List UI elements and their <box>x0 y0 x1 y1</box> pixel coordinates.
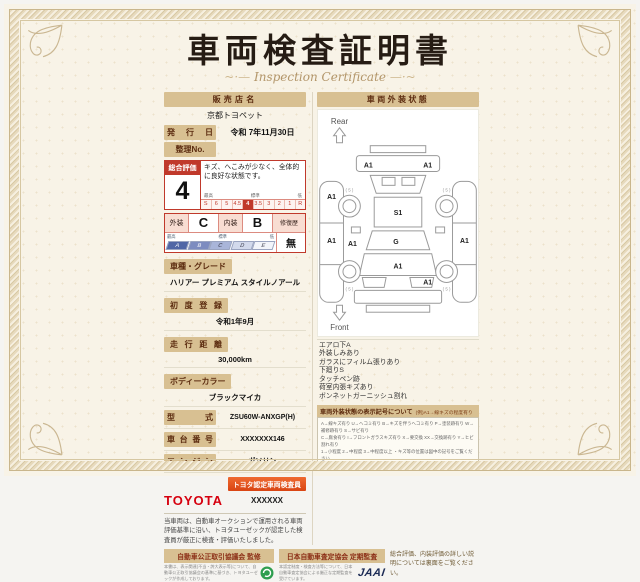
grade-chip: E <box>252 241 276 250</box>
ref-no-label: 整理No. <box>164 142 216 157</box>
jaai-audit-text: 本認定制度・検査方法等について、日本自動車査定協会による厳正な定期監査を受けてい… <box>279 564 356 582</box>
field-value: ブラックマイカ <box>164 389 306 404</box>
vehicle-field: 車台番号XXXXXXX146 <box>164 432 306 451</box>
field-value: ハリアー プレミアム スタイルノアール <box>164 274 306 289</box>
field-label: 型式 <box>164 410 216 425</box>
issue-date-row: 発行日 令和 7年11月30日 <box>164 125 306 140</box>
field-label: ボディーカラー <box>164 374 231 389</box>
overall-rating-detail: キズ、へこみが少なく、全体的に良好な状態です。 最高 標準 低 S654.543… <box>201 161 305 209</box>
field-label: 車種・グレード <box>164 259 232 274</box>
rating-scale-cell: S <box>201 200 211 209</box>
certified-inspector-badge: トヨタ認定車両検査員 <box>228 477 306 491</box>
inspection-disclaimer: 当車両は、自動車オークションで運用される車両評価基準に沿い、トヨタユーゼックが認… <box>164 513 306 545</box>
interior-grade-value: B <box>243 214 273 232</box>
condition-note: 外装しみあり <box>319 350 479 358</box>
field-label: エンジン <box>164 454 216 469</box>
back-page-note: 総合評価、内装評価の詳しい説明については裏面をご覧ください。 <box>390 549 476 579</box>
field-value: ZSU60W-ANXGP(H) <box>219 414 306 421</box>
front-direction-label: Front <box>330 323 349 332</box>
condition-note: 荷室内張キズあり <box>319 384 479 392</box>
jaai-audit-block: 日本自動車査定協会 定期監査 本認定制度・検査方法等について、日本自動車査定協会… <box>279 549 385 582</box>
fair-trade-council-body: 本書は、表示関連(不当・誇大表示等)について、自動車公正取引協議会の基準に基づき… <box>164 564 274 582</box>
certificate-paper: 車両検査証明書 Inspection Certificate 販売店名 京都トヨ… <box>4 4 636 476</box>
grade-chip: A <box>166 241 190 250</box>
tire-depth-mark: ( 5 ) <box>345 286 353 291</box>
rating-scale-row: S654.543.5321R <box>201 199 305 209</box>
exterior-condition-column: 車両外装状態 <box>312 92 479 545</box>
legend-example: (例)A1→線キズの程度有り <box>416 409 473 416</box>
dealer-name-value: 京都トヨペット <box>164 107 306 123</box>
damage-mark: A1 <box>394 263 403 270</box>
legend-key-lines: A→線キズ有り U→ヘコミ有り B→キズを伴うヘコミ有り P→塗装跡有り W→補… <box>317 417 479 465</box>
field-value: ガソリン <box>219 456 306 466</box>
condition-note: エアロ下A <box>319 342 479 350</box>
rating-scale-cell: 6 <box>211 200 222 209</box>
certificate-title: 車両検査証明書 <box>4 34 636 69</box>
vehicle-field: 初度登録令和1年9月 <box>164 295 306 331</box>
field-label: 車台番号 <box>164 432 216 447</box>
damage-mark: A1 <box>460 237 469 244</box>
overall-rating-comment: キズ、へこみが少なく、全体的に良好な状態です。 <box>201 161 305 193</box>
certificate-subtitle: Inspection Certificate <box>4 70 636 84</box>
grade-chips: ABCDE <box>167 240 274 251</box>
field-label: 初度登録 <box>164 298 228 313</box>
inspector-block: トヨタ認定車両検査員 TOYOTA XXXXXX <box>164 477 306 508</box>
condition-note: 下廻りS <box>319 367 479 375</box>
car-outline <box>320 127 477 319</box>
interior-grade-label: 内装 <box>219 214 243 232</box>
issue-date-label: 発行日 <box>164 125 216 140</box>
repair-history-label: 修復歴 <box>273 214 305 232</box>
fair-trade-emblem-icon <box>260 566 274 580</box>
rating-scale-cell: 3 <box>263 200 274 209</box>
grade-chip: B <box>187 241 211 250</box>
vehicle-field: エンジンガソリン <box>164 454 306 473</box>
overall-rating-score: 4 <box>165 175 200 209</box>
fair-trade-council-text: 本書は、表示関連(不当・誇大表示等)について、自動車公正取引協議会の基準に基づき… <box>164 564 258 582</box>
jaai-logo: JAAI <box>357 567 386 579</box>
vehicle-field: 車種・グレードハリアー プレミアム スタイルノアール <box>164 256 306 292</box>
legend-line: A→線キズ有り U→ヘコミ有り B→キズを伴うヘコミ有り P→塗装跡有り W→補… <box>321 420 475 434</box>
content-columns: 販売店名 京都トヨペット 発行日 令和 7年11月30日 整理No. 総合評価 … <box>164 92 476 545</box>
rating-scale-cell: R <box>295 200 306 209</box>
damage-mark: A1 <box>364 162 373 169</box>
dealer-name-label: 販売店名 <box>164 92 306 107</box>
grade-chip: D <box>230 241 254 250</box>
rating-scale-cell: 4.5 <box>232 200 243 209</box>
overall-rating-score-cell: 総合評価 4 <box>165 161 201 209</box>
vehicle-field: ボディーカラーブラックマイカ <box>164 371 306 407</box>
damage-mark: A1 <box>423 279 432 286</box>
condition-notes-list: エアロ下A外装しみありガラスにフィルム張りあり下廻りSタッチペン跡荷室内張キズあ… <box>317 339 479 403</box>
car-top-view-diagram: Rear Front A1A1A1A1A1A1S1GA1A1( 5 )( 5 )… <box>318 110 478 336</box>
fair-trade-council-title: 自動車公正取引協議会 監修 <box>164 549 274 563</box>
legend-header: 車両外装状態の表示記号について (例)A1→線キズの程度有り <box>317 405 479 417</box>
toyota-logo: TOYOTA <box>164 493 228 508</box>
rear-arrow-icon <box>334 127 346 142</box>
rating-scale-cell: 5 <box>221 200 232 209</box>
inspector-number: XXXXXX <box>228 496 306 505</box>
rating-scale-cell: 4 <box>242 200 253 209</box>
damage-mark: A1 <box>348 240 357 247</box>
vehicle-info-column: 販売店名 京都トヨペット 発行日 令和 7年11月30日 整理No. 総合評価 … <box>164 92 306 545</box>
field-value: 令和1年9月 <box>164 313 306 328</box>
exterior-grade-value: C <box>189 214 219 232</box>
grades-box: 外装 C 内装 B 修復歴 最高 標準 低 ABCDE 無 <box>164 213 306 253</box>
rear-direction-label: Rear <box>331 117 349 126</box>
rating-scale-cell: 2 <box>274 200 285 209</box>
damage-mark: G <box>393 238 398 245</box>
grade-scale-row: 最高 標準 低 ABCDE 無 <box>165 233 305 252</box>
damage-mark: S1 <box>394 210 403 217</box>
footer: 自動車公正取引協議会 監修 本書は、表示関連(不当・誇大表示等)について、自動車… <box>164 549 476 582</box>
exterior-grade-label: 外装 <box>165 214 189 232</box>
field-value: 30,000km <box>164 352 306 365</box>
overall-rating-box: 総合評価 4 キズ、へこみが少なく、全体的に良好な状態です。 最高 標準 低 S… <box>164 160 306 210</box>
tire-depth-mark: ( 5 ) <box>443 286 451 291</box>
condition-note: ボンネットガーニッシュ割れ <box>319 393 479 401</box>
fair-trade-council-block: 自動車公正取引協議会 監修 本書は、表示関連(不当・誇大表示等)について、自動車… <box>164 549 274 582</box>
vehicle-fields: 車種・グレードハリアー プレミアム スタイルノアール初度登録令和1年9月走行距離… <box>164 256 306 473</box>
grade-chip-scale: 最高 標準 低 ABCDE <box>165 233 277 252</box>
exterior-condition-header: 車両外装状態 <box>317 92 479 107</box>
field-value: XXXXXXX146 <box>219 436 306 443</box>
tire-depth-mark: ( 5 ) <box>443 187 451 192</box>
overall-rating-label: 総合評価 <box>165 161 200 175</box>
rating-scale-cell: 3.5 <box>253 200 264 209</box>
tire-depth-mark: ( 5 ) <box>345 187 353 192</box>
field-label: 走行距離 <box>164 337 228 352</box>
car-diagram-panel: Rear Front A1A1A1A1A1A1S1GA1A1( 5 )( 5 )… <box>317 109 479 337</box>
corner-flourish-icon <box>576 416 618 458</box>
damage-mark: A1 <box>327 194 336 201</box>
rating-scale-cell: 1 <box>284 200 295 209</box>
legend-line: C→腐食有り I→フロントガラスキズ有り X→要交換 XX→交換跡有り Y→ヒビ… <box>321 434 475 448</box>
condition-note: ガラスにフィルム張りあり <box>319 359 479 367</box>
issue-date-value: 令和 7年11月30日 <box>219 127 306 138</box>
jaai-audit-title: 日本自動車査定協会 定期監査 <box>279 549 385 563</box>
jaai-audit-body: 本認定制度・検査方法等について、日本自動車査定協会による厳正な定期監査を受けてい… <box>279 564 385 582</box>
grade-chip: C <box>209 241 233 250</box>
ref-no-row: 整理No. <box>164 142 306 157</box>
corner-flourish-icon <box>22 416 64 458</box>
vehicle-field: 走行距離30,000km <box>164 334 306 368</box>
legend-title: 車両外装状態の表示記号について <box>320 407 413 416</box>
condition-note: タッチペン跡 <box>319 376 479 384</box>
damage-mark: A1 <box>327 237 336 244</box>
grades-row: 外装 C 内装 B 修復歴 <box>165 214 305 233</box>
vehicle-field: 型式ZSU60W-ANXGP(H) <box>164 410 306 429</box>
legend-line: 1→小程度 2→中程度 3→中程度以上 ・キズ等の位置は図中の記号をご覧ください <box>321 448 475 462</box>
front-arrow-icon <box>334 305 346 320</box>
repair-history-value: 無 <box>277 233 305 252</box>
damage-mark: A1 <box>423 162 432 169</box>
